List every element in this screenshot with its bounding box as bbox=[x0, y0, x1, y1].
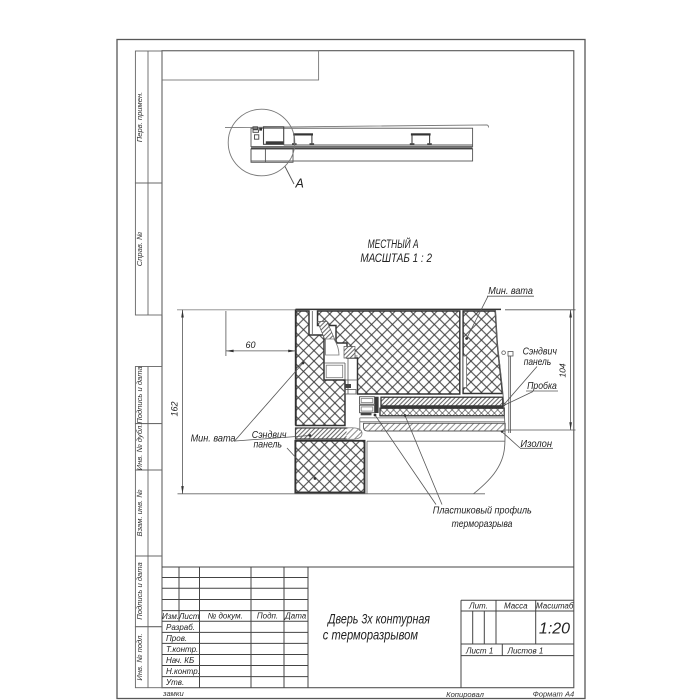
svg-text:Перв. примен.: Перв. примен. bbox=[135, 92, 144, 142]
svg-text:Мин. вата: Мин. вата bbox=[488, 286, 533, 297]
svg-text:Инв. № подл.: Инв. № подл. bbox=[135, 633, 144, 680]
svg-text:Формат А4: Формат А4 bbox=[533, 690, 575, 699]
svg-text:Дверь 3х контурная: Дверь 3х контурная bbox=[326, 611, 430, 627]
svg-text:Подп.: Подп. bbox=[257, 612, 278, 621]
svg-text:с терморазрывом: с терморазрывом bbox=[323, 627, 419, 643]
svg-text:Лит.: Лит. bbox=[468, 601, 488, 610]
svg-text:Масштаб: Масштаб bbox=[536, 601, 574, 610]
svg-text:Копировал: Копировал bbox=[446, 690, 484, 699]
svg-text:А: А bbox=[295, 177, 304, 191]
svg-text:Пробка: Пробка bbox=[527, 380, 557, 392]
svg-text:Изм.: Изм. bbox=[162, 612, 179, 621]
svg-text:Сэндвич: Сэндвич bbox=[523, 347, 558, 358]
svg-text:панель: панель bbox=[524, 357, 552, 368]
svg-text:Лист: Лист bbox=[178, 612, 200, 621]
svg-text:панель: панель bbox=[254, 440, 283, 451]
svg-text:Инв. № дубл.: Инв. № дубл. bbox=[135, 424, 144, 471]
svg-text:Масса: Масса bbox=[504, 601, 528, 610]
svg-text:Мин. вата: Мин. вата bbox=[191, 434, 236, 445]
svg-text:Н.контр.: Н.контр. bbox=[166, 667, 200, 676]
svg-text:Дата: Дата bbox=[284, 612, 307, 621]
svg-text:Листов 1: Листов 1 bbox=[507, 646, 544, 655]
svg-text:терморазрыва: терморазрыва bbox=[452, 519, 513, 530]
svg-text:162: 162 bbox=[170, 401, 180, 416]
svg-text:Пластиковый профиль: Пластиковый профиль bbox=[433, 505, 532, 517]
svg-text:Подпись и дата: Подпись и дата bbox=[135, 562, 144, 619]
svg-text:Взам. инв. №: Взам. инв. № bbox=[135, 490, 144, 537]
svg-text:Лист 1: Лист 1 bbox=[465, 646, 493, 655]
svg-text:60: 60 bbox=[245, 340, 255, 350]
svg-text:№ докум.: № докум. bbox=[208, 612, 243, 621]
svg-text:Т.контр.: Т.контр. bbox=[166, 645, 198, 654]
svg-text:104: 104 bbox=[557, 363, 567, 377]
svg-text:Пров.: Пров. bbox=[166, 634, 187, 643]
svg-text:Нач. КБ: Нач. КБ bbox=[166, 656, 194, 665]
svg-text:1:20: 1:20 bbox=[539, 621, 570, 638]
svg-text:МЕСТНЫЙ А: МЕСТНЫЙ А bbox=[368, 238, 419, 251]
svg-text:Справ. №: Справ. № bbox=[135, 232, 144, 267]
svg-text:замки: замки bbox=[162, 689, 184, 698]
svg-text:Утв.: Утв. bbox=[165, 678, 184, 687]
svg-text:МАСШТАБ 1 : 2: МАСШТАБ 1 : 2 bbox=[360, 253, 432, 265]
svg-text:Разраб.: Разраб. bbox=[166, 623, 195, 632]
svg-text:Подпись и дата: Подпись и дата bbox=[135, 366, 144, 423]
